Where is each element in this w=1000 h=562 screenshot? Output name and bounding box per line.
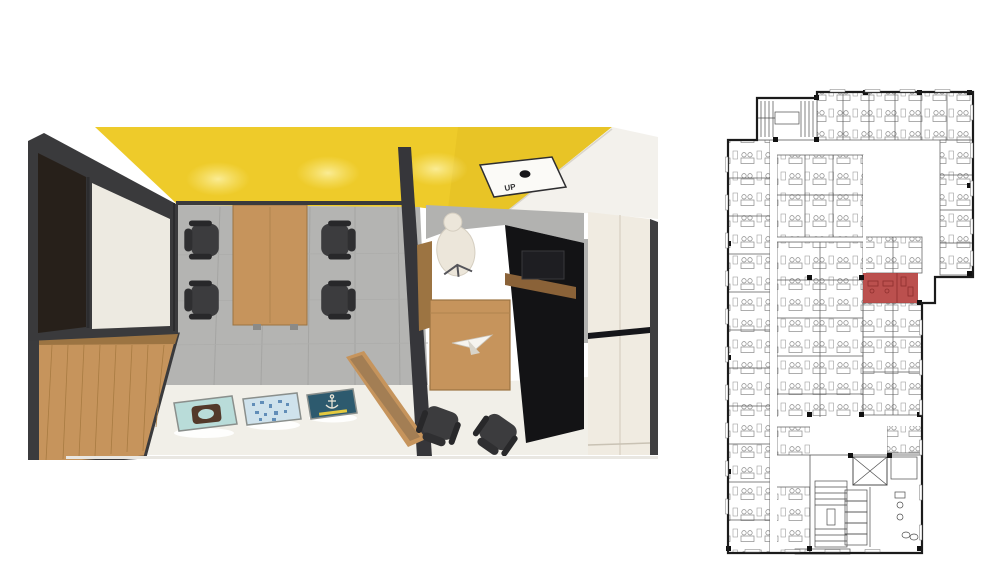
credenza-frame (28, 330, 39, 460)
sign-dot (520, 170, 531, 178)
monitor (522, 251, 564, 279)
wardrobe-panels (588, 212, 658, 455)
wardrobe-edge (650, 219, 658, 455)
render-bottom-shadow (66, 456, 658, 459)
private-office (413, 211, 584, 460)
partition-top-rail (176, 201, 404, 205)
page-canvas: UP (0, 0, 1000, 562)
interior-render: UP (28, 127, 658, 460)
table-leg (290, 324, 298, 330)
wall-dark-panel (38, 153, 86, 333)
table-leg (253, 324, 261, 330)
artwork-anchor (307, 389, 357, 419)
floor-plan-svg (715, 85, 975, 560)
ceiling-light-glow (186, 162, 250, 196)
interior-render-svg: UP (28, 127, 658, 460)
service-core (795, 455, 922, 554)
ceiling-light-glow (404, 152, 468, 186)
artwork-emblem (174, 396, 237, 431)
stairwell-top (757, 98, 817, 140)
highlight-room (863, 273, 918, 303)
floor-plan (715, 85, 975, 560)
ceiling-light-glow (296, 156, 360, 190)
artwork-blue-pattern (243, 393, 301, 425)
